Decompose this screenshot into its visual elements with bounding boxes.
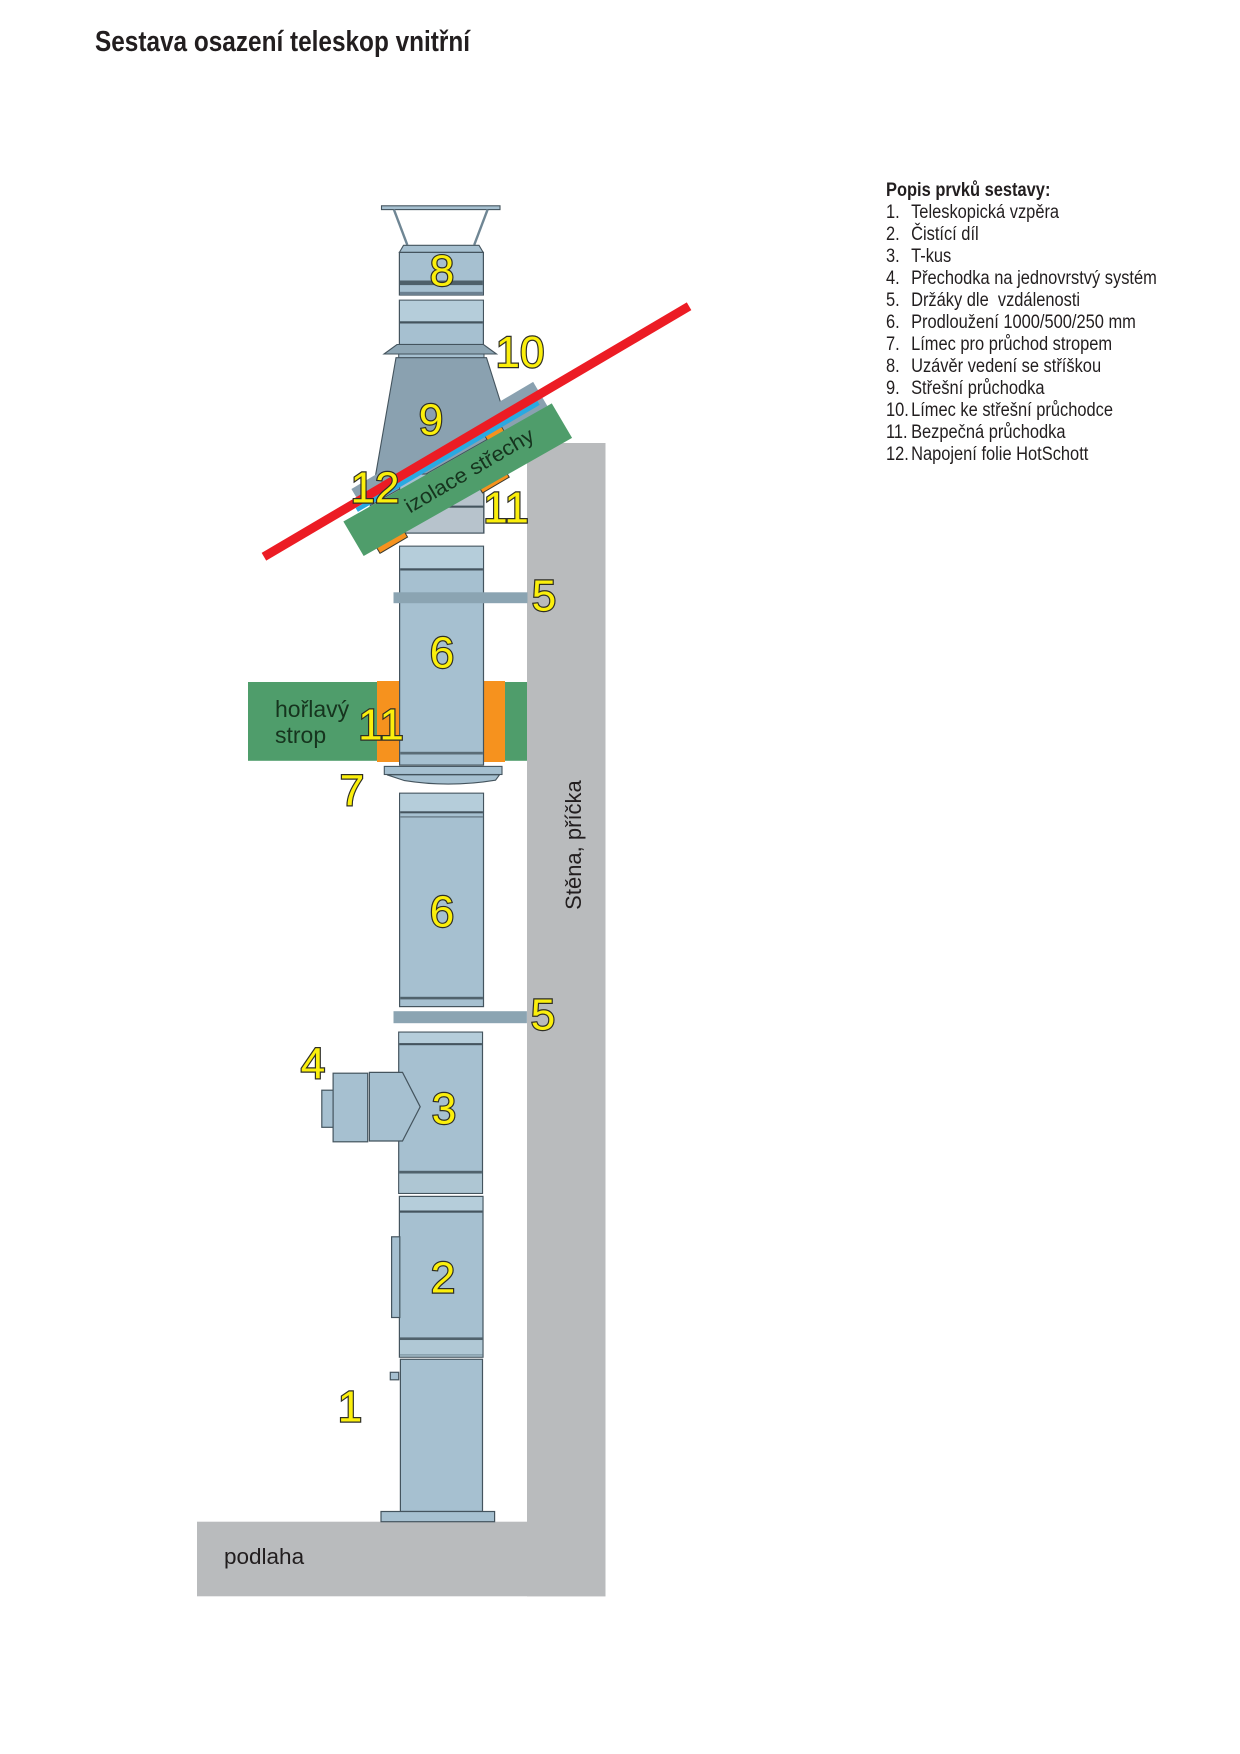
svg-text:10: 10: [496, 328, 545, 377]
svg-text:5: 5: [532, 572, 556, 621]
svg-text:12: 12: [351, 464, 400, 513]
svg-text:9: 9: [419, 396, 443, 445]
svg-text:4: 4: [301, 1040, 325, 1089]
svg-text:11: 11: [358, 701, 404, 750]
svg-text:2: 2: [431, 1254, 455, 1303]
svg-text:6: 6: [430, 888, 454, 937]
svg-text:11: 11: [483, 484, 529, 533]
svg-text:3: 3: [432, 1085, 456, 1134]
svg-text:1: 1: [338, 1383, 362, 1432]
svg-text:7: 7: [340, 767, 364, 816]
svg-text:6: 6: [430, 629, 454, 678]
svg-text:8: 8: [430, 247, 454, 296]
svg-text:5: 5: [531, 991, 555, 1040]
